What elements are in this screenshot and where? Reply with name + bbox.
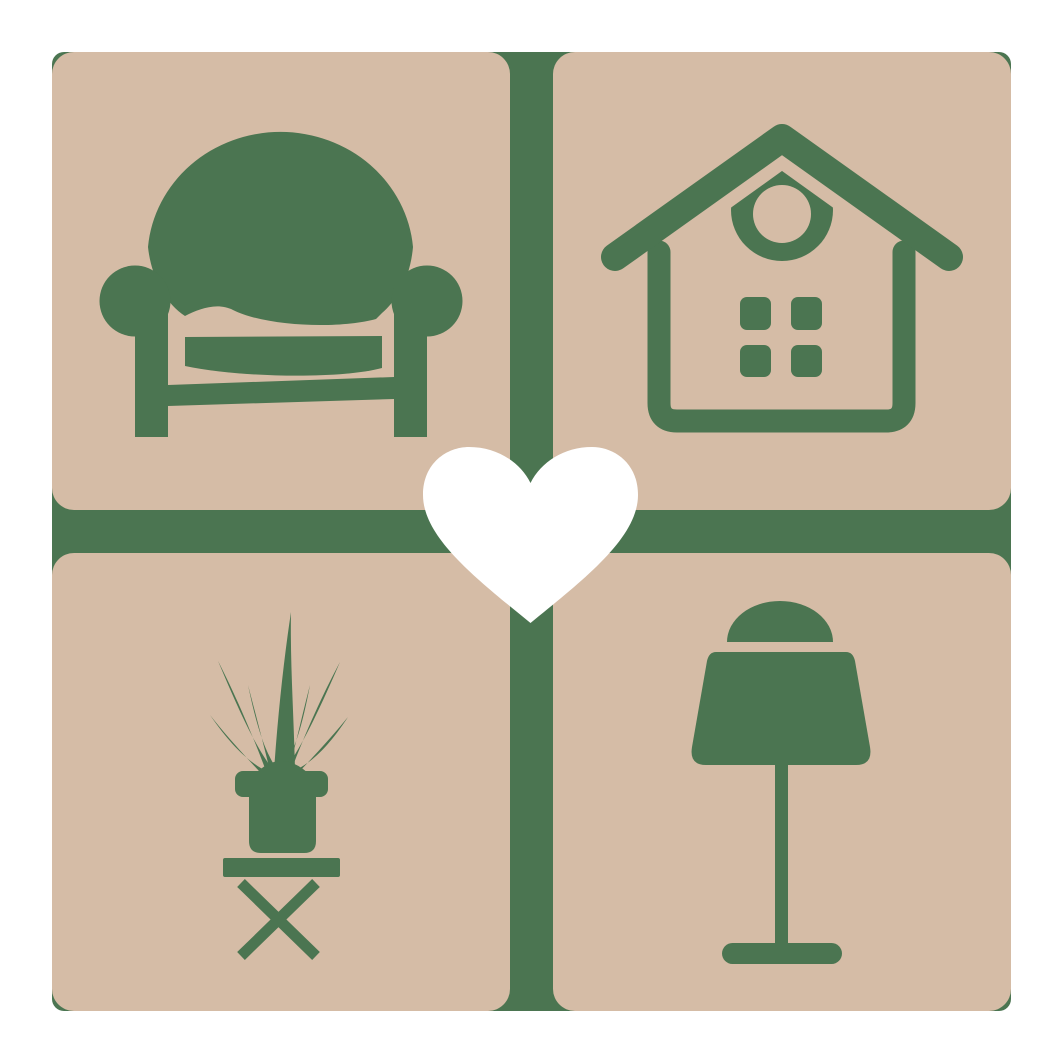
house-icon <box>553 52 1011 510</box>
furniture-home-logo <box>0 0 1063 1063</box>
armchair-icon <box>52 52 510 510</box>
tile-house <box>553 52 1011 510</box>
heart-icon <box>423 447 638 623</box>
tile-armchair <box>52 52 510 510</box>
